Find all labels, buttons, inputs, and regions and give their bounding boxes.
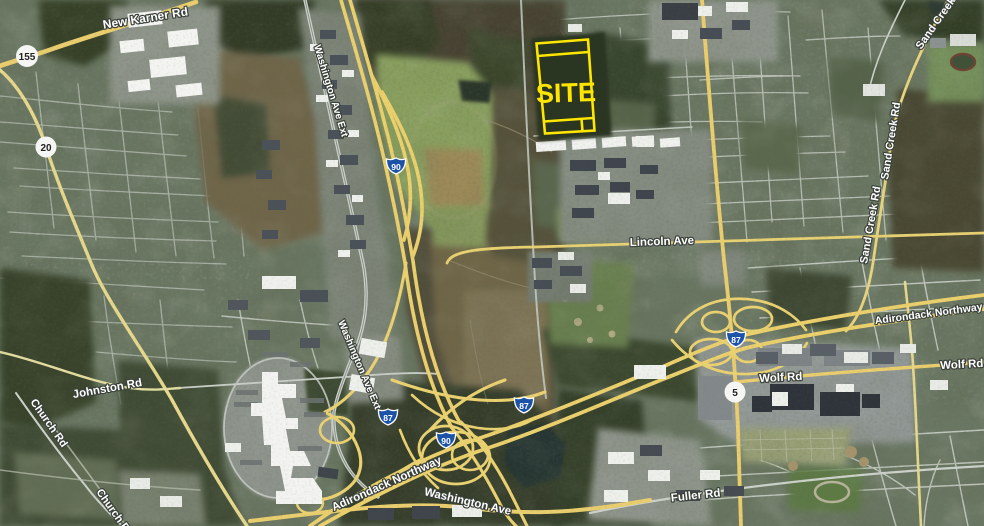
- svg-text:Lincoln Ave: Lincoln Ave: [630, 235, 695, 249]
- svg-text:Wolf Rd: Wolf Rd: [940, 358, 984, 372]
- svg-text:87: 87: [731, 335, 741, 345]
- svg-text:5: 5: [732, 388, 738, 399]
- svg-text:20: 20: [40, 143, 52, 154]
- svg-text:155: 155: [19, 52, 36, 63]
- svg-text:SITE: SITE: [535, 77, 596, 109]
- svg-text:Wolf Rd: Wolf Rd: [759, 371, 803, 385]
- svg-text:90: 90: [391, 162, 401, 172]
- svg-text:90: 90: [441, 436, 451, 446]
- svg-text:87: 87: [519, 401, 529, 411]
- svg-text:87: 87: [383, 413, 393, 423]
